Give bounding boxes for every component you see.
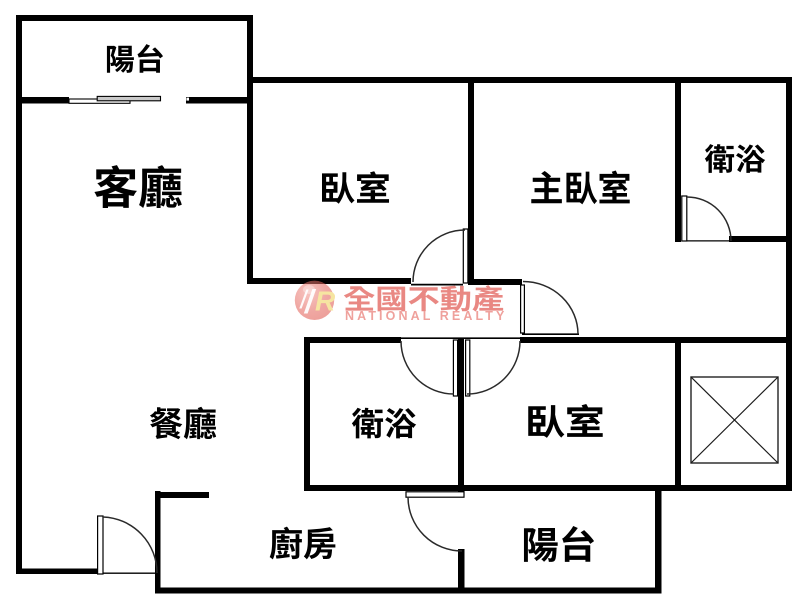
svg-text:R: R	[315, 286, 336, 317]
svg-text:NATIONAL REALTY: NATIONAL REALTY	[345, 309, 507, 323]
